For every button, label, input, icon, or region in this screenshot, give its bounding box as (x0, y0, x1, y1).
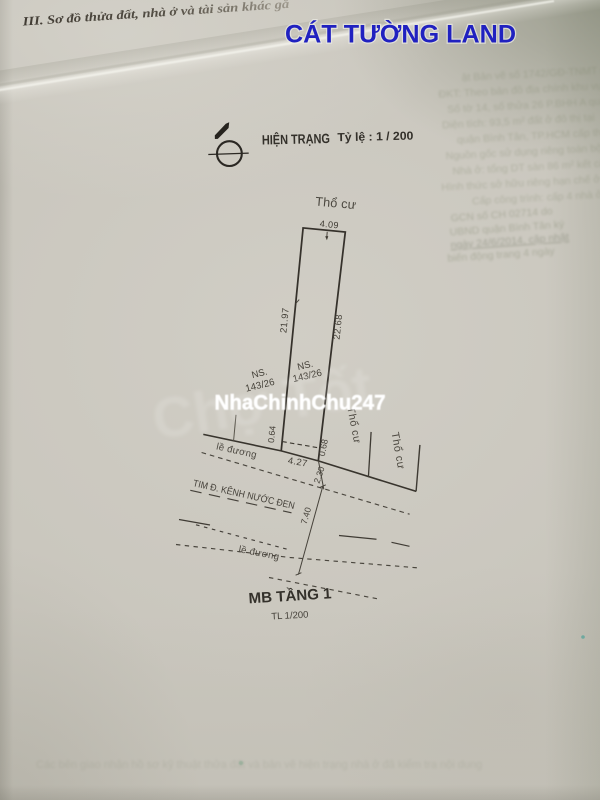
svg-text:22.68: 22.68 (331, 314, 345, 341)
svg-text:143/26: 143/26 (292, 368, 323, 385)
svg-text:ật Bản vẽ số 1742/GĐ-TNMT câp: ật Bản vẽ số 1742/GĐ-TNMT câp (461, 64, 600, 84)
svg-text:HIỆN TRẠNGTỷ lệ : 1 / 200: HIỆN TRẠNGTỷ lệ : 1 / 200 (262, 129, 414, 148)
svg-text:Các bên giao nhận hồ sơ kỹ thu: Các bên giao nhận hồ sơ kỹ thuật thửa đấ… (36, 759, 482, 771)
svg-text:Thổ cư: Thổ cư (315, 195, 358, 213)
svg-text:Cấp công trình: cấp 4 nhà ở: Cấp công trình: cấp 4 nhà ở (472, 189, 600, 208)
svg-text:ĐKT: Theo bản đồ địa chính khu: ĐKT: Theo bản đồ địa chính khu vực (438, 80, 600, 101)
svg-text:Thổ cư: Thổ cư (389, 431, 407, 470)
svg-text:7.40: 7.40 (299, 506, 313, 525)
svg-text:4.09: 4.09 (319, 219, 339, 231)
svg-text:143/26: 143/26 (244, 377, 275, 395)
svg-text:2.30: 2.30 (312, 465, 327, 485)
svg-text:TIM Đ. KÊNH NƯỚC ĐEN: TIM Đ. KÊNH NƯỚC ĐEN (192, 478, 296, 512)
svg-text:GCN số CH 02714 do: GCN số CH 02714 do (450, 205, 553, 224)
svg-text:0.68: 0.68 (317, 438, 330, 457)
svg-text:Nguồn gốc sử dụng riêng toàn b: Nguồn gốc sử dụng riêng toàn bộ (445, 142, 600, 162)
svg-text:Thổ cư: Thổ cư (344, 406, 363, 445)
svg-text:Hình thức sở hữu riêng hạn chế: Hình thức sở hữu riêng hạn chế ở (441, 173, 600, 193)
svg-text:NS.: NS. (296, 359, 314, 373)
svg-text:III. Sơ đồ thửa đất, nhà ở và: III. Sơ đồ thửa đất, nhà ở và tài sản kh… (21, 0, 290, 29)
svg-text:lề đương: lề đương (238, 544, 281, 563)
svg-text:ngày 24/6/2014, cập nhật: ngày 24/6/2014, cập nhật (450, 231, 569, 251)
svg-text:Diện tích: 93,5 m² đất ở đô th: Diện tích: 93,5 m² đất ở đô thị tại (442, 112, 595, 132)
svg-text:UBND quận Bình Tân ký: UBND quận Bình Tân ký (449, 218, 565, 238)
svg-text:4.27: 4.27 (287, 454, 308, 468)
svg-text:Chợ Tốt: Chợ Tốt (148, 354, 376, 452)
svg-text:Số tờ 14, số thửa 26 P.BHH A q: Số tờ 14, số thửa 26 P.BHH A quận (447, 95, 600, 116)
svg-text:TL 1/200: TL 1/200 (271, 610, 309, 623)
svg-text:21.97: 21.97 (277, 307, 290, 333)
svg-text:0.64: 0.64 (266, 425, 278, 443)
svg-text:lề đương: lề đương (215, 441, 258, 461)
svg-text:NhaChinhChu247: NhaChinhChu247 (215, 390, 386, 415)
svg-text:quận Bình Tân, TP.HCM cấp theo: quận Bình Tân, TP.HCM cấp theo (457, 126, 600, 146)
svg-text:Nhà ở: tổng DT sàn 86 m² kết c: Nhà ở: tổng DT sàn 86 m² kết cấu (452, 157, 600, 177)
svg-text:NS.: NS. (251, 367, 269, 382)
svg-text:MB TẦNG 1: MB TẦNG 1 (248, 585, 332, 607)
svg-text:biến động trang 4 ngày: biến động trang 4 ngày (447, 245, 556, 265)
